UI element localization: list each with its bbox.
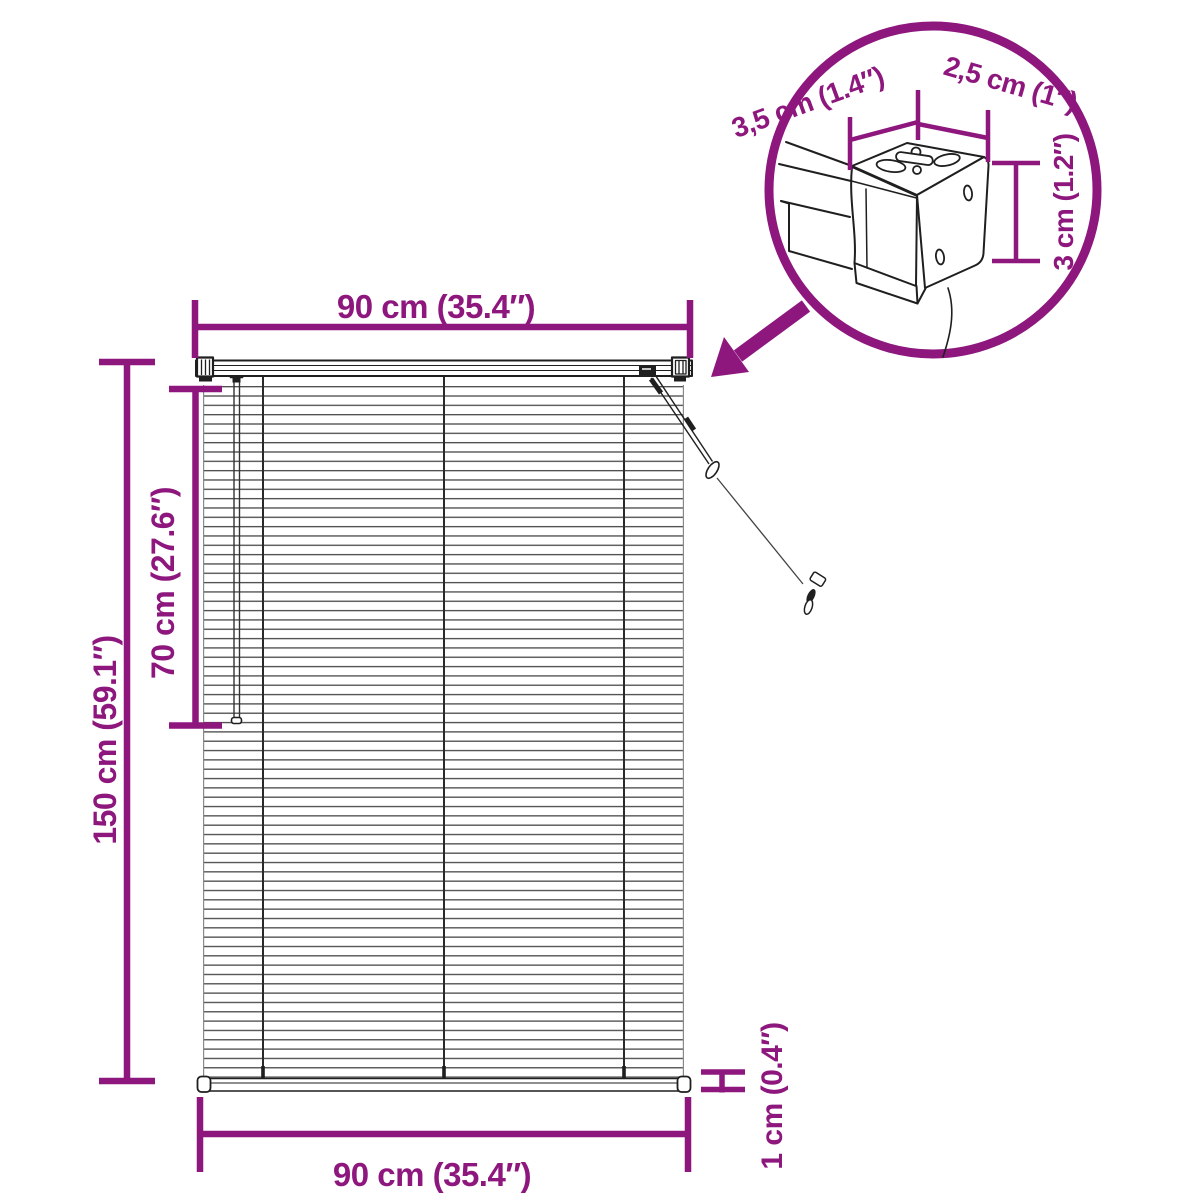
label-bottom-width: 90 cm (35.4″) <box>333 1156 531 1193</box>
label-bracket-depth: 3,5 cm (1.4″) <box>728 60 888 144</box>
label-bracket-height: 3 cm (1.2″) <box>1048 133 1079 270</box>
dim-total-height: 150 cm (59.1″) <box>87 362 155 1081</box>
callout-arrow <box>711 306 806 377</box>
label-top-width: 90 cm (35.4″) <box>337 288 535 325</box>
bracket-callout-inset: 3,5 cm (1.4″) 2,5 cm (1″) 3 cm (1.2″) <box>728 26 1097 357</box>
wand-handle-clip <box>809 571 826 586</box>
venetian-blind-front-view <box>196 358 826 1093</box>
product-dimension-diagram: 90 cm (35.4″) 150 cm (59.1″) 70 cm (27.6… <box>0 0 1200 1200</box>
label-cord-height: 70 cm (27.6″) <box>145 487 181 679</box>
bracket-drawing <box>779 142 989 357</box>
label-rail-thickness: 1 cm (0.4″) <box>756 1022 789 1169</box>
wand-connector <box>703 460 721 481</box>
dim-bottom-width: 90 cm (35.4″) <box>200 1097 688 1193</box>
label-bracket-width: 2,5 cm (1″) <box>940 50 1080 118</box>
dim-rail-thickness: 1 cm (0.4″) <box>701 1022 789 1169</box>
tilt-mechanism <box>639 366 656 376</box>
wand-in-inset <box>943 288 952 357</box>
bottom-rail <box>198 1077 691 1093</box>
diagram-canvas: 90 cm (35.4″) 150 cm (59.1″) 70 cm (27.6… <box>0 0 1200 1200</box>
dim-top-width: 90 cm (35.4″) <box>195 288 690 358</box>
label-total-height: 150 cm (59.1″) <box>87 635 123 844</box>
